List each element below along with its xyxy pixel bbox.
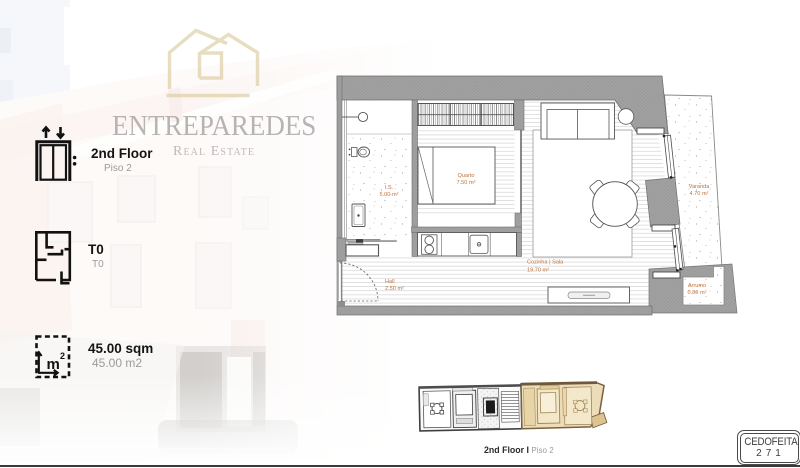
svg-text:Cozinha | Sala: Cozinha | Sala — [527, 260, 564, 266]
svg-text:m: m — [47, 356, 60, 373]
svg-text:2.50 m²: 2.50 m² — [385, 286, 404, 292]
svg-text:0.80 m²: 0.80 m² — [688, 290, 707, 296]
svg-text:5.00 m²: 5.00 m² — [380, 192, 399, 198]
svg-text:I.S.: I.S. — [385, 185, 394, 191]
svg-text:4.70 m²: 4.70 m² — [690, 191, 709, 197]
svg-text:2: 2 — [60, 351, 65, 361]
svg-text:Hall: Hall — [385, 279, 395, 285]
svg-text:Arrumo: Arrumo — [688, 283, 706, 289]
svg-text:Varanda: Varanda — [689, 184, 711, 190]
svg-text:Quarto: Quarto — [457, 173, 474, 179]
svg-text:19.70 m²: 19.70 m² — [527, 268, 549, 274]
svg-text:7.50 m²: 7.50 m² — [457, 180, 476, 186]
